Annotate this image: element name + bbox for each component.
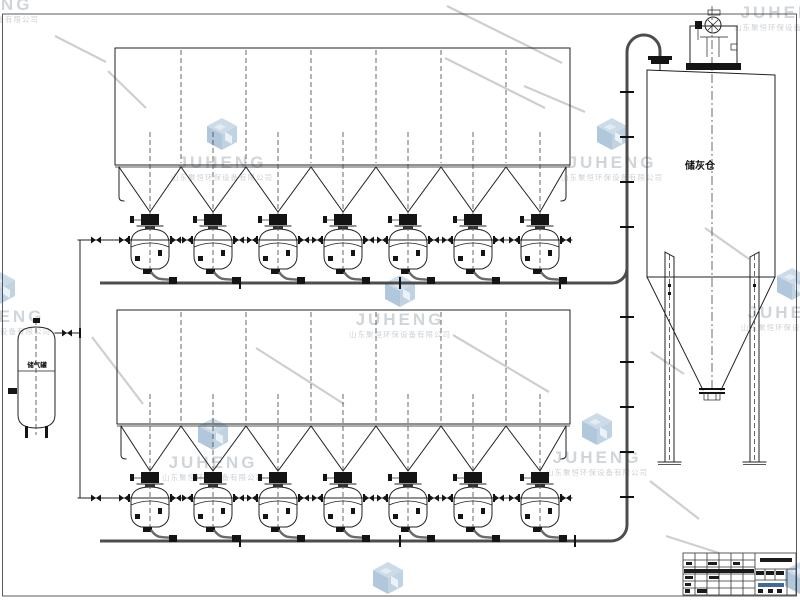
pump-unit bbox=[247, 214, 309, 284]
drawing-canvas: JUHENG 山东聚恒环保设备有限公司 bbox=[0, 0, 800, 600]
ash-silo: 储灰仓 bbox=[647, 6, 775, 465]
top-hopper-funnels bbox=[119, 167, 566, 212]
watermark bbox=[171, 118, 273, 182]
pump-unit bbox=[312, 472, 374, 542]
cad-drawing-page: JUHENG 山东聚恒环保设备有限公司 bbox=[0, 0, 800, 600]
pump-unit bbox=[377, 214, 439, 284]
filter-motor bbox=[695, 21, 702, 29]
watermark bbox=[337, 562, 439, 600]
top-collector bbox=[115, 48, 570, 214]
watermark bbox=[749, 562, 800, 600]
silo-inlet-flange bbox=[648, 56, 672, 60]
pump-unit bbox=[119, 214, 181, 284]
pump-unit bbox=[509, 472, 571, 542]
tank-outlet-valve bbox=[62, 330, 72, 337]
pump-unit bbox=[119, 472, 181, 542]
watermark bbox=[546, 413, 648, 477]
top-collector-centerlines bbox=[181, 50, 506, 163]
pump-unit bbox=[442, 214, 504, 284]
watermark-layer bbox=[0, 0, 800, 600]
pump-unit bbox=[182, 214, 244, 284]
pump-unit bbox=[509, 214, 571, 284]
pump-unit bbox=[182, 472, 244, 542]
air-tank-label: 储气罐 bbox=[26, 360, 47, 369]
silo-cone bbox=[647, 277, 703, 390]
pump-unit bbox=[312, 214, 374, 284]
pump-unit bbox=[377, 472, 439, 542]
silo-roof bbox=[647, 70, 775, 75]
top-pump-row bbox=[119, 214, 571, 284]
tank-nozzle bbox=[8, 388, 17, 394]
watermark bbox=[0, 272, 51, 336]
watermark bbox=[734, 0, 800, 32]
silo-label: 储灰仓 bbox=[684, 159, 716, 172]
tank-leg bbox=[25, 426, 28, 438]
title-block bbox=[683, 553, 796, 595]
silo-vent-filter bbox=[686, 10, 741, 70]
air-valve bbox=[91, 237, 101, 244]
drawing-title-bar bbox=[760, 558, 792, 562]
tank-leg bbox=[45, 426, 48, 438]
bottom-collector bbox=[117, 310, 570, 472]
pump-unit bbox=[247, 472, 309, 542]
pump-unit bbox=[442, 472, 504, 542]
watermark bbox=[0, 0, 39, 24]
air-valve bbox=[91, 495, 101, 502]
bottom-pump-row bbox=[119, 472, 571, 542]
air-tank: 储气罐 bbox=[8, 318, 55, 438]
bottom-collector-centerlines bbox=[181, 312, 506, 422]
filter-base-flange bbox=[686, 63, 741, 70]
company-name-bar bbox=[758, 583, 784, 587]
silo-outlet bbox=[704, 393, 720, 400]
watermark bbox=[561, 118, 663, 182]
compressed-air-piping bbox=[55, 237, 572, 502]
